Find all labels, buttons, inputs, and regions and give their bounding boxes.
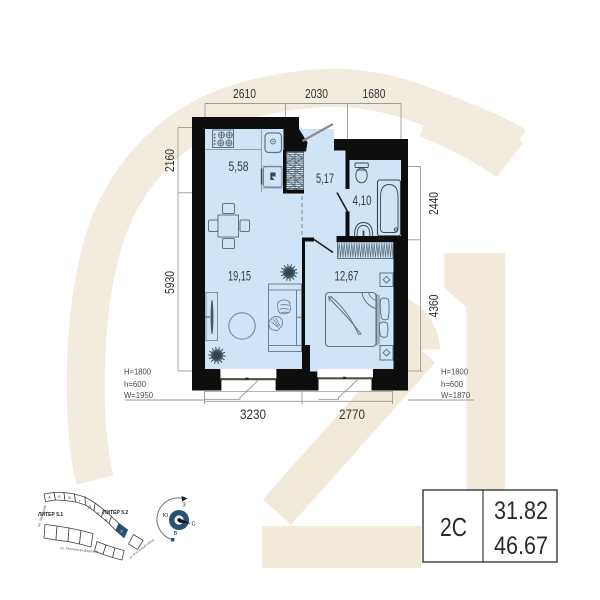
svg-text:5,58: 5,58	[229, 159, 249, 174]
svg-text:2770: 2770	[339, 407, 365, 422]
svg-text:С: С	[192, 521, 196, 527]
svg-text:4,10: 4,10	[353, 193, 372, 208]
svg-text:2030: 2030	[305, 87, 328, 101]
svg-text:З: З	[120, 529, 122, 533]
svg-text:2160: 2160	[163, 149, 177, 172]
svg-text:W=1950: W=1950	[124, 390, 153, 400]
svg-text:46.67: 46.67	[494, 532, 548, 560]
svg-text:1680: 1680	[363, 87, 386, 101]
svg-text:19,15: 19,15	[228, 269, 251, 284]
svg-text:2С: 2С	[440, 512, 467, 542]
svg-text:h=600: h=600	[441, 379, 463, 389]
svg-text:Г: Г	[79, 499, 81, 503]
svg-text:H=1800: H=1800	[441, 367, 468, 377]
svg-text:12,67: 12,67	[335, 269, 359, 284]
svg-text:W=1870: W=1870	[441, 390, 470, 400]
svg-text:5930: 5930	[163, 271, 177, 294]
svg-text:Ю: Ю	[163, 513, 169, 519]
svg-text:2440: 2440	[427, 192, 441, 215]
svg-text:4360: 4360	[427, 294, 441, 317]
svg-text:H=1800: H=1800	[124, 367, 151, 377]
svg-text:В: В	[174, 531, 178, 537]
svg-text:31.82: 31.82	[494, 497, 548, 525]
svg-text:2610: 2610	[233, 87, 256, 101]
svg-text:h=600: h=600	[124, 379, 146, 389]
svg-text:3230: 3230	[240, 407, 266, 422]
svg-text:5,17: 5,17	[316, 171, 334, 186]
svg-text:ЛИТЕР 5.2: ЛИТЕР 5.2	[103, 510, 128, 516]
